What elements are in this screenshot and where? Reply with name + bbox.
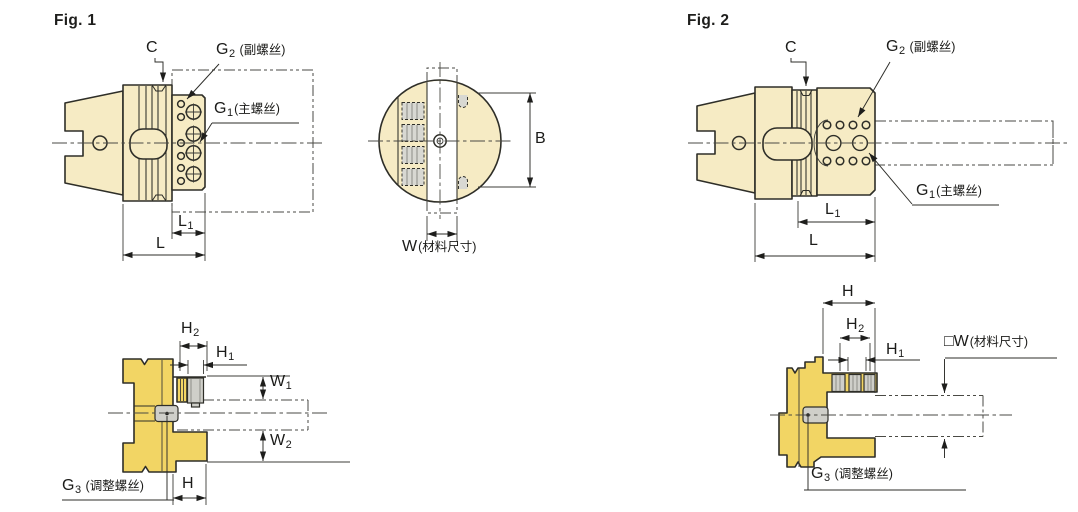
section1-h1-dimension — [170, 360, 247, 374]
section1-w2-label: W2 — [270, 433, 292, 451]
section2-w-label: □W(材料尺寸) — [944, 334, 1028, 350]
fig1-l-label: L — [156, 236, 165, 252]
front-slot-band — [427, 80, 457, 203]
fig1-c-leader — [155, 58, 163, 82]
section2-material-phantom — [875, 396, 983, 437]
fig1-l-dimension — [123, 204, 205, 261]
fig1-g2-leader — [187, 64, 219, 99]
section2-h1-dimension — [828, 357, 920, 371]
section2-h2-dimension — [840, 338, 870, 371]
fig2-g1-label: G1(主螺丝) — [916, 183, 982, 201]
technical-drawing-page: Fig. 1 Fig. 2 C G2 (副螺丝) G1(主螺丝) L1 L B … — [0, 0, 1078, 512]
fig2-l-label: L — [809, 233, 818, 249]
fig2-c-label: C — [785, 40, 797, 56]
fig1-drive-slot — [130, 129, 167, 159]
front-w-label: W(材料尺寸) — [402, 239, 476, 255]
front-w-dimension — [427, 216, 457, 241]
fig2-l1-label: L1 — [825, 202, 841, 220]
drawing-canvas — [0, 0, 1078, 512]
section1-main-screw — [188, 378, 204, 407]
section1-h1-label: H1 — [216, 345, 234, 363]
fig2-drive-slot — [763, 128, 812, 160]
section2-h-label: H — [842, 284, 854, 300]
section1-h2-dimension — [180, 341, 207, 371]
section1-g3-label: G3 (调整螺丝) — [62, 478, 144, 496]
section2-g3-label: G3 (调整螺丝) — [811, 466, 893, 484]
fig1-g1-label: G1(主螺丝) — [214, 101, 280, 119]
section2-w-dimension — [945, 358, 1058, 458]
section1-h2-label: H2 — [181, 321, 199, 339]
fig1-title: Fig. 1 — [54, 13, 96, 29]
front-sub-screw-bottom — [459, 177, 468, 190]
fig2-section-view — [770, 303, 1057, 490]
front-view — [368, 62, 536, 241]
front-sub-screw-top — [459, 95, 468, 108]
section2-h2-label: H2 — [846, 317, 864, 335]
section2-clamp-screws — [832, 375, 875, 392]
section2-h1-label: H1 — [886, 342, 904, 360]
fig2-c-leader — [791, 58, 806, 86]
fig1-g2-label: G2 (副螺丝) — [216, 42, 285, 60]
section1-w1-label: W1 — [270, 374, 292, 392]
section1-sub-screw — [177, 378, 187, 402]
fig2-side-view — [688, 58, 1068, 262]
fig1-c-label: C — [146, 40, 158, 56]
fig1-l1-label: L1 — [178, 214, 194, 232]
section1-h-label: H — [182, 476, 194, 492]
fig1-g1-leader — [200, 123, 299, 142]
front-b-label: B — [535, 131, 546, 147]
fig2-g2-label: G2 (副螺丝) — [886, 39, 955, 57]
fig2-title: Fig. 2 — [687, 13, 729, 29]
